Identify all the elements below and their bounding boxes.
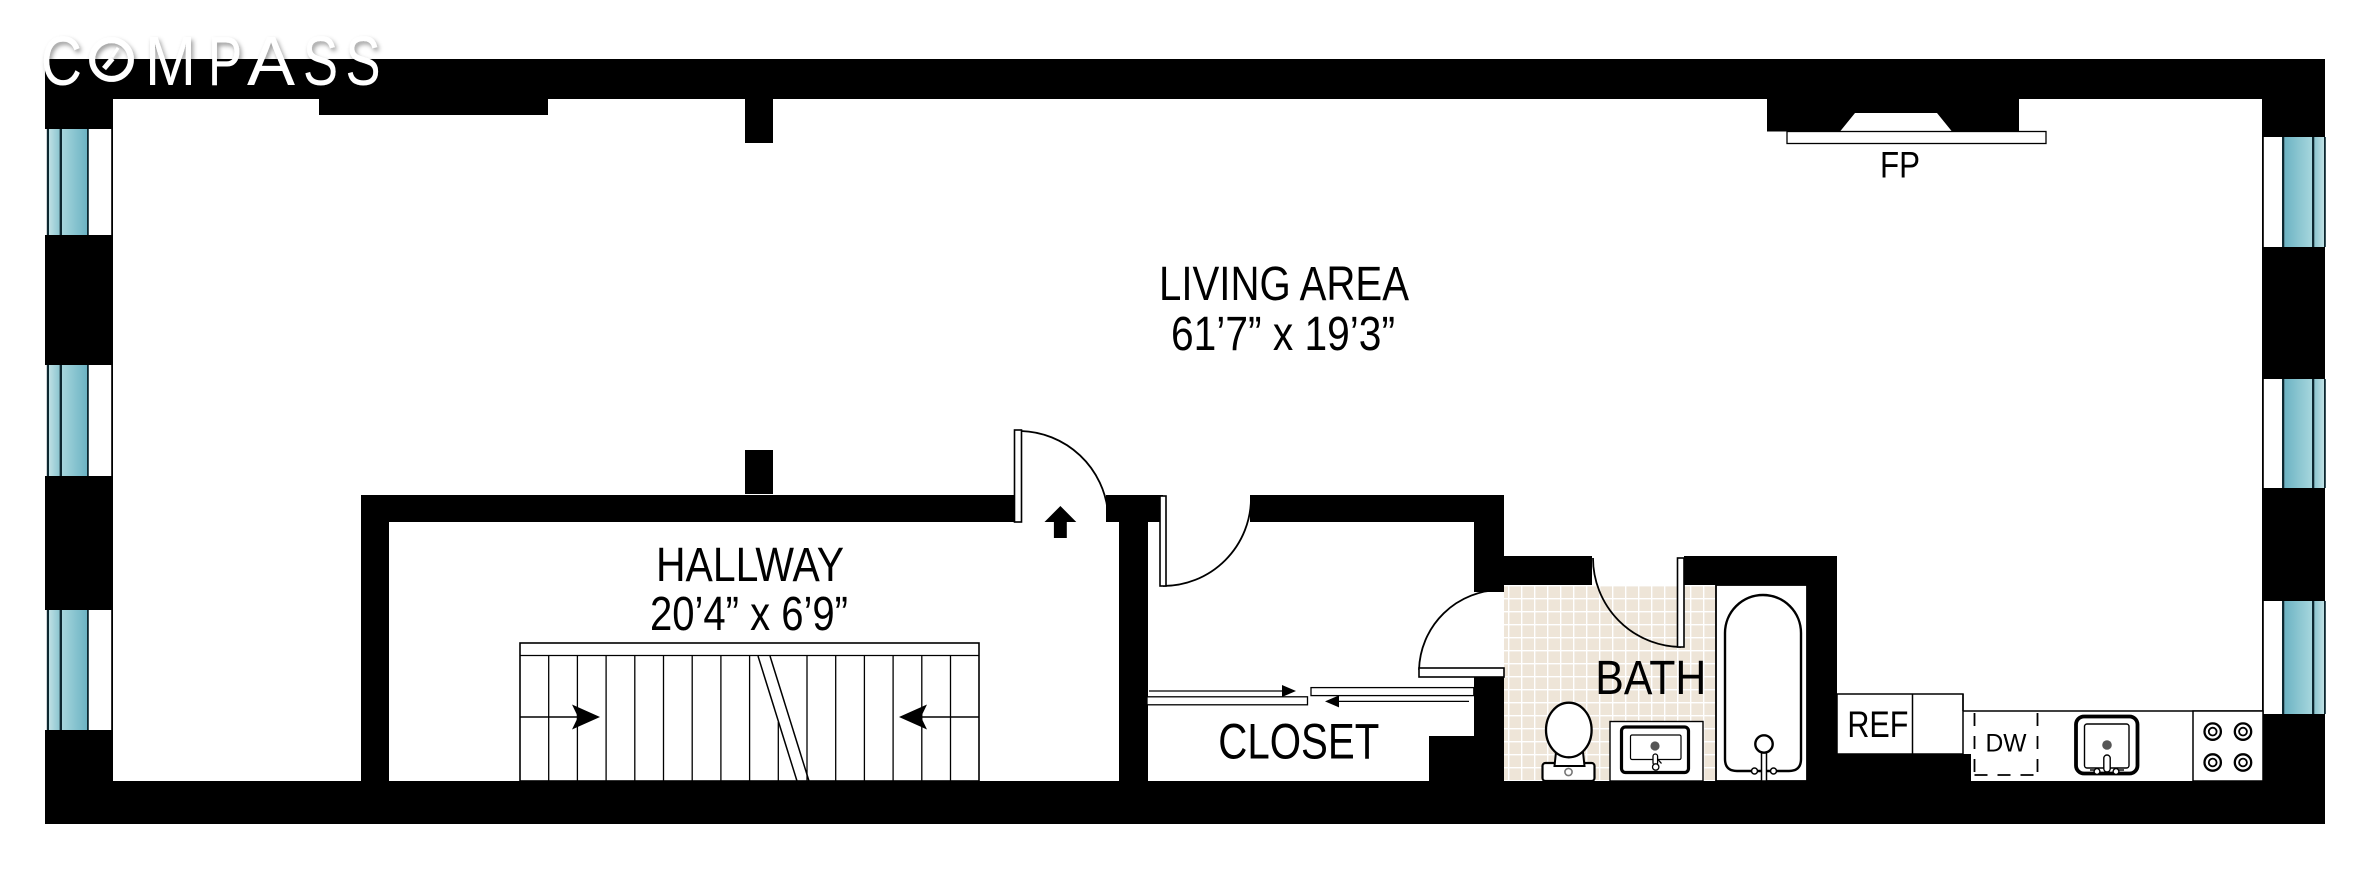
svg-text:A: A — [247, 22, 295, 100]
svg-text:S: S — [346, 22, 381, 100]
svg-text:HALLWAY: HALLWAY — [656, 539, 844, 592]
svg-text:CLOSET: CLOSET — [1218, 714, 1379, 770]
svg-text:C: C — [41, 22, 82, 100]
svg-text:M: M — [145, 22, 196, 100]
svg-text:61’7” x 19’3”: 61’7” x 19’3” — [1171, 308, 1395, 361]
svg-text:FP: FP — [1880, 144, 1920, 186]
svg-text:20’4” x 6’9”: 20’4” x 6’9” — [650, 588, 848, 641]
svg-text:LIVING AREA: LIVING AREA — [1159, 258, 1409, 311]
svg-text:BATH: BATH — [1595, 652, 1706, 705]
svg-text:P: P — [208, 22, 242, 100]
svg-text:REF: REF — [1847, 703, 1908, 745]
svg-text:S: S — [303, 22, 338, 100]
svg-text:DW: DW — [1986, 730, 2028, 757]
